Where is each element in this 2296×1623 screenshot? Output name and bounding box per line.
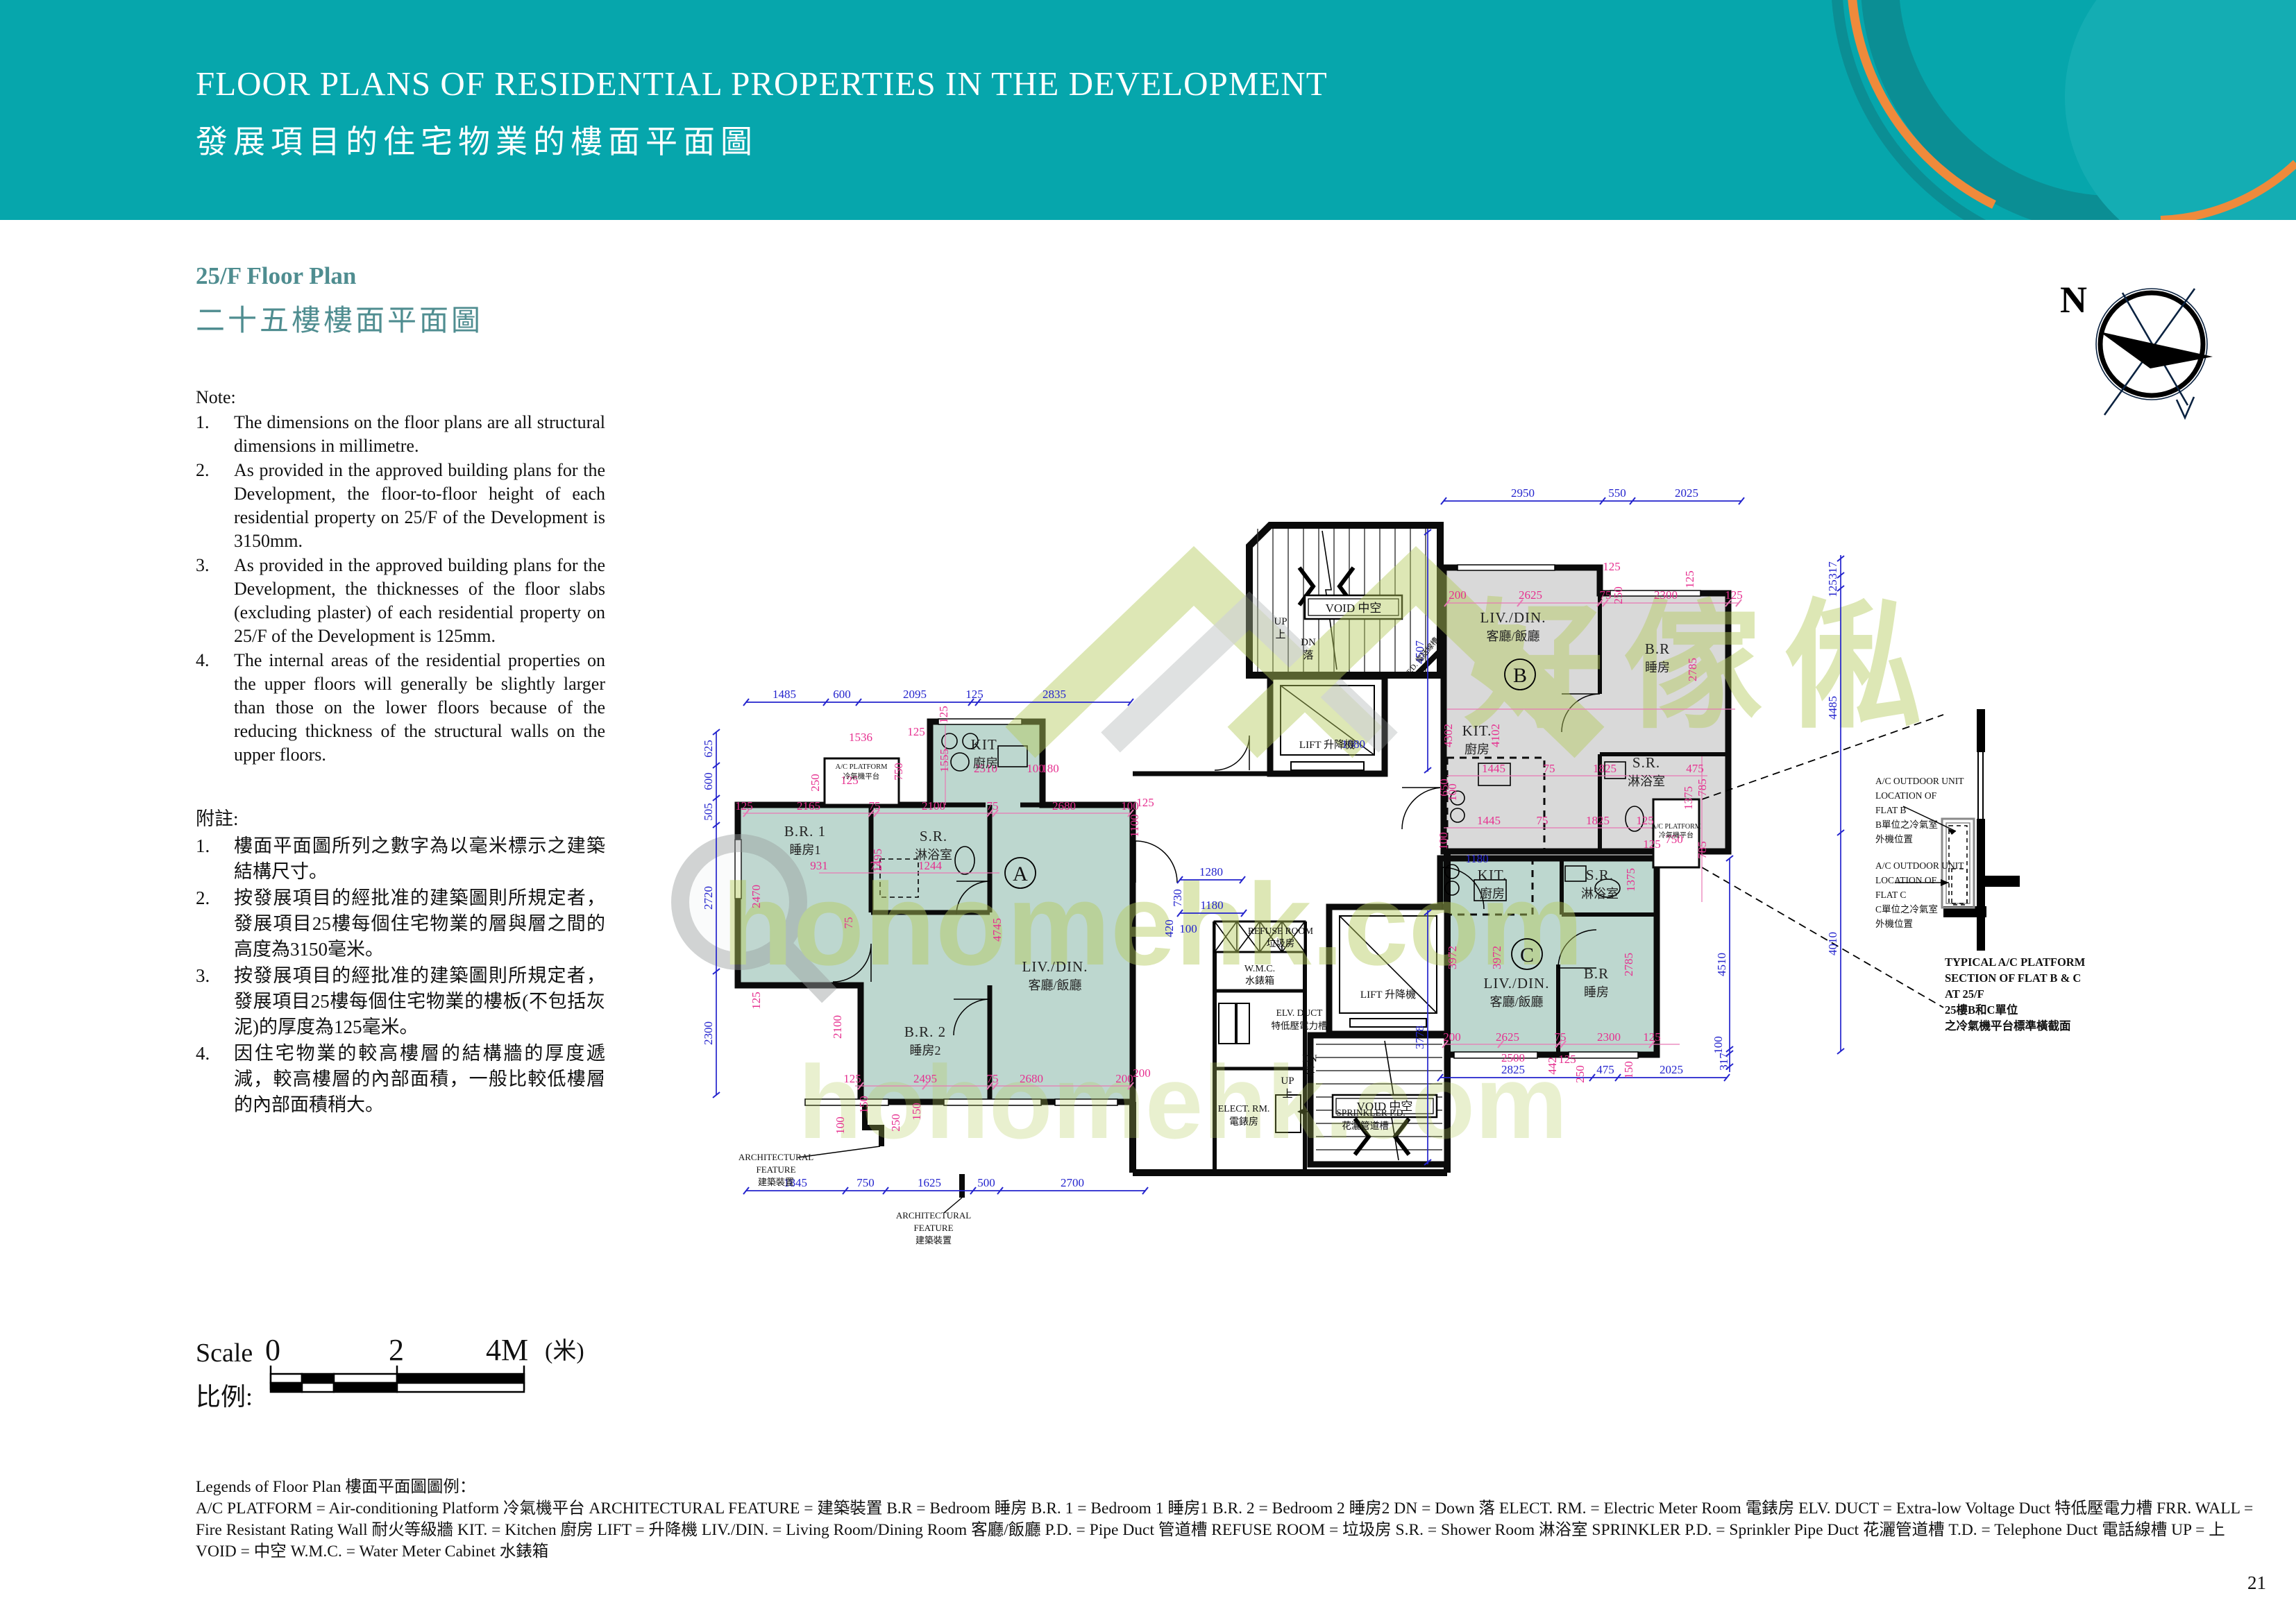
dim-label: 125 (1603, 560, 1621, 573)
dim-label: 75 (1555, 1030, 1567, 1044)
header-band: FLOOR PLANS OF RESIDENTIAL PROPERTIES IN… (0, 0, 2296, 220)
dim-label: 200 (1133, 1067, 1151, 1080)
note-text: As provided in the approved building pla… (234, 554, 605, 648)
dim-label: 550 (1608, 486, 1626, 500)
note-item: 3.按發展項目的經批准的建築圖則所規定者，發展項目25樓每個住宅物業的樓板(不包… (196, 963, 605, 1040)
scale-tick-4: 4M (486, 1333, 528, 1367)
notes-heading-cn: 附註: (196, 806, 605, 832)
dim-label: 2025 (1660, 1063, 1683, 1076)
watermark-text-2: hohomehk.com (798, 1044, 1567, 1160)
dim-label: 180 (1041, 762, 1059, 775)
dim-label: 600 (833, 688, 851, 701)
plan-label: 特低壓電力槽 (1272, 1021, 1328, 1031)
ac-outdoor-flat-c: C單位之冷氣室 (1875, 903, 1938, 915)
scale-label: Scale (196, 1338, 253, 1368)
plan-label: 落 (1303, 649, 1313, 661)
dim-label: 475 (1686, 762, 1704, 775)
plan-label: ELECT. RM. (1218, 1104, 1270, 1114)
plan-label: 建築裝置 (758, 1177, 794, 1187)
section-caption: 之冷氣機平台標準橫截面 (1945, 1019, 2071, 1033)
plan-label: VOID 中空 (1326, 602, 1382, 615)
dim-label: 75 (987, 1072, 999, 1085)
flat-letter: B (1513, 664, 1527, 687)
dim-label: 785 (1696, 779, 1709, 797)
dim-label: 4010 (1826, 932, 1839, 955)
dim-label: 750 (892, 763, 905, 781)
note-number: 4. (196, 1041, 234, 1118)
plan-label: FEATURE (913, 1223, 953, 1233)
note-number: 4. (196, 649, 234, 767)
note-number: 2. (196, 459, 234, 553)
plan-label: UP (1281, 1076, 1294, 1087)
section-caption: SECTION OF FLAT B & C (1945, 971, 2081, 985)
dim-label: 2300 (1597, 1030, 1621, 1044)
note-item: 2.按發展項目的經批准的建築圖則所規定者，發展項目25樓每個住宅物業的層與層之間… (196, 885, 605, 962)
dim-label: 2100 (922, 799, 945, 813)
notes-english: Note: 1.The dimensions on the floor plan… (196, 386, 605, 767)
dim-label: 125 (843, 1072, 861, 1085)
plan-label: A/C PLATFORM (1651, 823, 1701, 831)
ac-outdoor-flat-b: B單位之冷氣室 (1875, 819, 1938, 830)
room-name: LIV./DIN. (1480, 609, 1546, 626)
room-name-cn: 睡房 (1584, 985, 1609, 999)
dim-label: 931 (810, 859, 828, 872)
dim-label: 125 (1826, 579, 1839, 597)
room-name: S.R. (920, 828, 947, 844)
dim-label: 3972 (1446, 946, 1459, 969)
dim-label: 2625 (1496, 1030, 1519, 1044)
room-name: B.R (1645, 640, 1670, 657)
room-name-cn: 廚房 (1464, 742, 1489, 756)
note-item: 4.The internal areas of the residential … (196, 649, 605, 767)
dim-label: 1625 (918, 1176, 941, 1189)
note-item: 3.As provided in the approved building p… (196, 554, 605, 648)
dim-label: 1100 (1128, 814, 1141, 837)
note-number: 3. (196, 963, 234, 1040)
dim-label: 1375 (1624, 868, 1637, 892)
room-name-cn: 客廳/飯廳 (1486, 629, 1539, 643)
section-caption: TYPICAL A/C PLATFORM (1945, 955, 2086, 969)
ac-outdoor-flat-c: FLAT C (1875, 890, 1906, 900)
dim-label: 1445 (1477, 814, 1501, 827)
dim-label: 2785 (1622, 953, 1635, 976)
notes-chinese: 附註: 1.樓面平面圖所列之數字為以毫米標示之建築結構尺寸。 2.按發展項目的經… (196, 806, 605, 1119)
room-name-cn: 廚房 (1480, 886, 1505, 901)
dim-label: 75 (1544, 762, 1555, 775)
plan-label: REFUSE ROOM (1248, 926, 1313, 936)
dim-label: 2950 (1511, 486, 1535, 500)
flat-letter: C (1520, 944, 1534, 967)
plan-label: UP (1274, 616, 1287, 627)
dim-label: 475 (1596, 1063, 1614, 1076)
brochure-page: { "header": { "title_en": "FLOOR PLANS O… (0, 0, 2296, 1623)
page-title: FLOOR PLANS OF RESIDENTIAL PROPERTIES IN… (196, 64, 1328, 103)
dim-label: 125 (1643, 838, 1661, 851)
dim-label: 125 (1643, 1030, 1661, 1044)
dim-label: 785 (1696, 841, 1709, 859)
dim-label: 1536 (849, 731, 872, 744)
dim-label: 125 (965, 688, 984, 701)
room-name: B.R (1584, 965, 1609, 982)
plan-label: SPRINKLER P.D. (1336, 1107, 1405, 1118)
plan-label: A/C PLATFORM (836, 763, 888, 771)
plan-label: 冷氣機平台 (843, 772, 880, 781)
dim-label: 730 (1171, 889, 1184, 907)
plan-label: 建築裝置 (915, 1235, 952, 1246)
dim-label: 500 (977, 1176, 995, 1189)
note-text: 樓面平面圖所列之數字為以毫米標示之建築結構尺寸。 (234, 833, 605, 885)
dim-label: 505 (702, 803, 715, 821)
dim-label: 125 (1683, 570, 1696, 588)
plan-label: ARCHITECTURAL (738, 1152, 813, 1162)
dim-label: 250 (809, 774, 822, 792)
scale-bar: 0 2 4M (米) (257, 1324, 590, 1414)
plan-label: DN (1302, 1053, 1317, 1064)
plan-label: 花灑管道槽 (1342, 1121, 1389, 1131)
scale-tick-2: 2 (389, 1333, 404, 1367)
legend-line: A/C PLATFORM = Air-conditioning Platform… (196, 1498, 2132, 1520)
dim-label: 4302 (1442, 724, 1455, 747)
dim-label: 2300 (1654, 588, 1678, 602)
dim-label: 2300 (702, 1021, 715, 1045)
dim-label: 1280 (1199, 865, 1223, 878)
notes-heading: Note: (196, 386, 605, 409)
plan-label: LIFT 升降機 (1360, 989, 1416, 1001)
room-name-cn: 睡房2 (910, 1044, 941, 1057)
ac-outdoor-flat-c: LOCATION OF (1875, 875, 1937, 885)
dim-label: 2720 (702, 886, 715, 910)
scale-unit: (米) (545, 1338, 584, 1364)
note-item: 1.The dimensions on the floor plans are … (196, 411, 605, 458)
plan-label: 上 (1275, 629, 1285, 640)
plan-label: FEATURE (756, 1164, 795, 1175)
note-text: 按發展項目的經批准的建築圖則所規定者，發展項目25樓每個住宅物業的層與層之間的高… (234, 885, 605, 962)
plan-label: 電錶房 (1229, 1116, 1258, 1128)
dim-label: 100 (1446, 783, 1459, 801)
scale-bar-graphic (271, 1366, 524, 1392)
dim-label: 1825 (1593, 762, 1617, 775)
room-name-cn: 睡房 (1645, 661, 1670, 674)
dim-label: 2625 (1519, 588, 1542, 602)
dim-label: 1555 (938, 749, 951, 772)
dim-label: 75 (1537, 814, 1548, 827)
compass-needle (2100, 332, 2213, 368)
note-number: 1. (196, 411, 234, 458)
room-name-cn: 睡房1 (790, 843, 821, 857)
flat-letter: A (1013, 863, 1028, 885)
plan-label: W.M.C. (1244, 964, 1275, 974)
dim-label: 1825 (1586, 814, 1610, 827)
dim-label: 100 (1712, 1036, 1725, 1054)
dim-label: 125 (750, 992, 763, 1010)
room-name: KIT. (1478, 867, 1508, 883)
dim-label: 1485 (773, 688, 796, 701)
room-name-cn: 淋浴室 (915, 848, 952, 862)
dim-label: 125 (1558, 1053, 1576, 1066)
room-name: KIT. (971, 736, 1001, 753)
dim-label: 75 (1600, 588, 1612, 602)
dim-label: 4745 (990, 918, 1004, 942)
note-number: 1. (196, 833, 234, 885)
plan-label: 上 (1282, 1088, 1292, 1100)
plan-label: LIFT 升降機 (1299, 739, 1355, 751)
page-title-cn: 發展項目的住宅物業的樓面平面圖 (196, 117, 758, 162)
dim-label: 125 (1136, 796, 1154, 809)
note-item: 1.樓面平面圖所列之數字為以毫米標示之建築結構尺寸。 (196, 833, 605, 885)
dim-label: 1445 (1482, 762, 1505, 775)
plan-label: ELV. DUCT (1276, 1008, 1324, 1018)
legend-line: VOID = 中空 W.M.C. = Water Meter Cabinet 水… (196, 1541, 2132, 1563)
note-item: 2.As provided in the approved building p… (196, 459, 605, 553)
scale-tick-0: 0 (265, 1333, 280, 1367)
plan-label: 冷氣機平台 (1659, 831, 1694, 840)
dim-label: 150 (1622, 1061, 1635, 1079)
header-decoration (1463, 0, 2296, 220)
section-title: 25/F Floor Plan (196, 262, 356, 290)
dim-label: 3778 (1413, 1026, 1426, 1049)
room-name-cn: 淋浴室 (1581, 887, 1619, 901)
dim-label: 2700 (1061, 1176, 1084, 1189)
floor-plan-svg: 好傢俬 hohomehk.com hohomehk.com 2950550202… (666, 444, 2124, 1318)
section-caption: 25樓B和C單位 (1945, 1003, 2018, 1017)
dim-label: 125 (1725, 588, 1743, 602)
dim-label: 250 (889, 1114, 902, 1132)
dim-label: 2495 (913, 1072, 937, 1085)
dim-label: 2165 (797, 799, 820, 813)
dim-label: 2095 (903, 688, 927, 701)
ac-outdoor-flat-b: 外機位置 (1875, 834, 1913, 844)
room-name: B.R. 1 (784, 823, 826, 840)
dim-label: 75 (870, 859, 882, 872)
note-number: 2. (196, 885, 234, 962)
legend-heading: Legends of Floor Plan 樓面平面圖圖例： (196, 1477, 2132, 1498)
legend: Legends of Floor Plan 樓面平面圖圖例： A/C PLATF… (196, 1477, 2132, 1563)
room-name: LIV./DIN. (1484, 975, 1550, 992)
dim-label: 442 (1546, 1057, 1559, 1075)
dim-label: 75 (869, 799, 881, 813)
dim-label: 2500 (1501, 1051, 1525, 1064)
room-name-cn: 廚房 (973, 756, 998, 770)
dim-label: 100 (1437, 832, 1450, 850)
dim-label: 200 (1115, 1072, 1133, 1085)
dim-label: 2835 (1043, 688, 1066, 701)
dim-label: 2785 (1686, 658, 1699, 681)
dim-label: 250 (1573, 1065, 1587, 1083)
section-caption: AT 25/F (1945, 987, 1984, 1001)
room-name: S.R. (1632, 754, 1660, 771)
dim-label: 125 (937, 706, 950, 724)
dim-label: 600 (702, 772, 715, 790)
dim-label: 3972 (1490, 946, 1503, 969)
ac-outdoor-flat-b: LOCATION OF (1875, 790, 1937, 801)
note-item: 4.因住宅物業的較高樓層的結構牆的厚度遞減，較高樓層的內部面積，一般比較低樓層的… (196, 1041, 605, 1118)
plan-label: DN (1301, 637, 1316, 648)
note-text: 按發展項目的經批准的建築圖則所規定者，發展項目25樓每個住宅物業的樓板(不包括灰… (234, 963, 605, 1040)
dim-label: 125 (907, 725, 925, 738)
page-number: 21 (2247, 1572, 2266, 1594)
dim-label: 750 (856, 1176, 875, 1189)
note-text: The dimensions on the floor plans are al… (234, 411, 605, 458)
note-text: As provided in the approved building pla… (234, 459, 605, 553)
note-text: 因住宅物業的較高樓層的結構牆的厚度遞減，較高樓層的內部面積，一般比較低樓層的內部… (234, 1041, 605, 1118)
room-name-cn: 客廳/飯廳 (1489, 995, 1543, 1009)
dim-label: 2825 (1501, 1063, 1525, 1076)
dim-label: 1180 (1465, 852, 1488, 865)
plan-label: 落 (1304, 1066, 1315, 1078)
elv-duct (1219, 1003, 1249, 1044)
north-compass: N (2041, 269, 2249, 436)
dim-label: 1180 (1200, 899, 1223, 912)
room-name-cn: 淋浴室 (1628, 774, 1665, 788)
dim-label: 2025 (1675, 486, 1698, 500)
room-name: S.R. (1586, 867, 1614, 883)
ac-outdoor-flat-c: 外機位置 (1875, 919, 1913, 929)
note-text: The internal areas of the residential pr… (234, 649, 605, 767)
dim-label: 2680 (1020, 1072, 1043, 1085)
room-name: KIT. (1462, 722, 1492, 739)
dim-label: 75 (842, 917, 855, 929)
ac-outdoor-flat-b: FLAT B (1875, 805, 1906, 815)
dim-label: 75 (987, 799, 999, 813)
dim-label: 1375 (1682, 786, 1695, 810)
north-label: N (2060, 279, 2087, 321)
room-name-cn: 客廳/飯廳 (1028, 978, 1081, 992)
dim-label: 200 (1443, 1030, 1461, 1044)
dim-label: 250 (1612, 586, 1625, 604)
dim-label: 100 (834, 1116, 847, 1135)
dim-label: 420 (1163, 919, 1176, 937)
plan-label: 水錶箱 (1245, 976, 1274, 987)
plan-label: ARCHITECTURAL (896, 1210, 971, 1221)
dim-label: 317 (1826, 561, 1839, 579)
section-title-cn: 二十五樓樓面平面圖 (196, 297, 483, 339)
dim-label: 2680 (1052, 799, 1076, 813)
dim-label: 317 (1717, 1053, 1730, 1071)
room-name: LIV./DIN. (1022, 958, 1088, 975)
note-number: 3. (196, 554, 234, 648)
ac-outdoor-flat-b: A/C OUTDOOR UNIT (1875, 776, 1964, 786)
dim-label: 200 (1449, 588, 1467, 602)
ac-outdoor-flat-c: A/C OUTDOOR UNIT (1875, 860, 1964, 871)
dim-label: 4485 (1826, 696, 1839, 720)
dim-label: 2100 (831, 1015, 844, 1039)
plan-label: 垃圾房 (1267, 938, 1295, 949)
dim-label: 150 (910, 1103, 923, 1121)
dim-label: 100 (1179, 922, 1197, 935)
dim-label: 2470 (750, 885, 763, 908)
room-name: B.R. 2 (904, 1023, 946, 1040)
dim-label: 150 (857, 1096, 870, 1114)
dim-label: 4510 (1715, 953, 1728, 976)
scale-label-cn: 比例: (196, 1377, 253, 1413)
dim-label: 125 (735, 799, 753, 813)
dim-label: 625 (702, 740, 715, 758)
legend-line: Fire Resistant Rating Wall 耐火等級牆 KIT. = … (196, 1520, 2132, 1541)
